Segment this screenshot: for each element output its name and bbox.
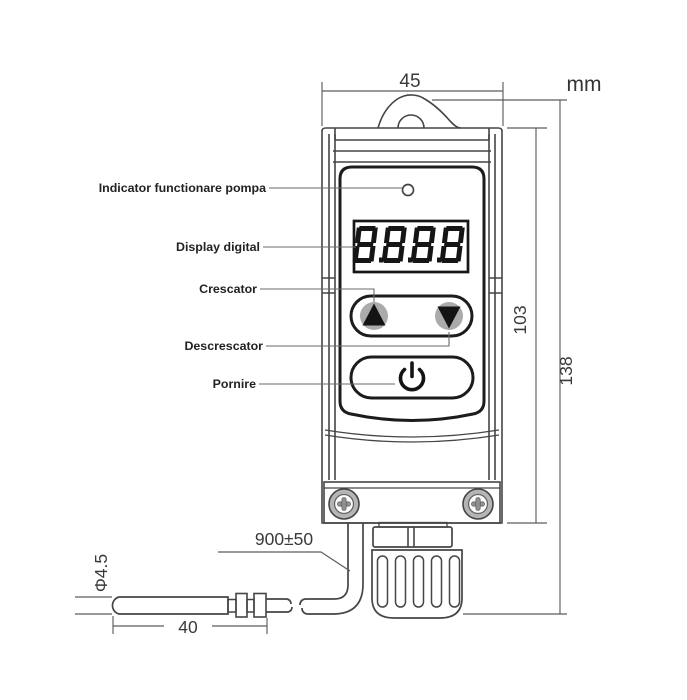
dim-cable-length: 900±50 bbox=[218, 529, 350, 571]
dim-width-text: 45 bbox=[399, 71, 420, 92]
unit-label: mm bbox=[567, 73, 602, 96]
top-cap bbox=[333, 128, 491, 162]
gland-ribs bbox=[378, 556, 460, 607]
lower-band bbox=[325, 430, 499, 442]
dim-width: 45 bbox=[322, 71, 503, 126]
dim-probe-length: 40 bbox=[113, 616, 267, 637]
technical-drawing-page: 45 mm 138 103 bbox=[0, 0, 687, 700]
screw-left-icon bbox=[329, 489, 359, 519]
dim-cable-length-text: 900±50 bbox=[255, 529, 314, 549]
dim-probe-diameter-text: Φ4.5 bbox=[91, 554, 111, 592]
dim-probe-diameter: Φ4.5 bbox=[75, 554, 112, 614]
dim-probe-length-text: 40 bbox=[178, 617, 198, 637]
dim-panel-height-text: 103 bbox=[510, 305, 530, 334]
callout-digital-display: Display digital bbox=[176, 240, 260, 254]
pump-led-indicator bbox=[403, 185, 414, 196]
callout-power: Pornire bbox=[213, 377, 256, 391]
dim-total-height-text: 138 bbox=[556, 356, 576, 385]
callout-decrease: Descrescator bbox=[184, 339, 263, 353]
callout-pump-indicator: Indicator functionare pompa bbox=[99, 181, 266, 195]
callout-increase: Crescator bbox=[199, 282, 257, 296]
cable-gland bbox=[372, 523, 462, 619]
dim-panel-height: 103 bbox=[507, 128, 547, 523]
device-body bbox=[322, 95, 502, 618]
screw-right-icon bbox=[463, 489, 493, 519]
thermostat-diagram: 45 mm 138 103 bbox=[0, 0, 687, 700]
temperature-probe bbox=[112, 594, 266, 618]
